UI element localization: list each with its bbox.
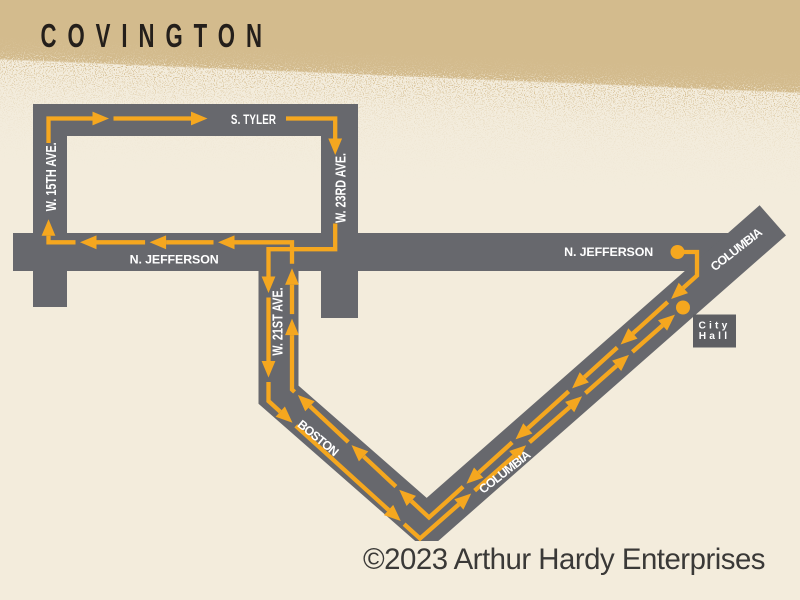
svg-text:S. TYLER: S. TYLER	[231, 111, 276, 127]
svg-text:©2023 Arthur Hardy Enterprises: ©2023 Arthur Hardy Enterprises	[363, 543, 765, 576]
svg-text:COVINGTON: COVINGTON	[41, 17, 273, 55]
svg-text:N. JEFFERSON: N. JEFFERSON	[564, 245, 653, 259]
svg-text:W. 15TH AVE.: W. 15TH AVE.	[42, 142, 59, 211]
svg-text:W. 23RD AVE.: W. 23RD AVE.	[332, 153, 349, 223]
svg-text:W. 21ST AVE.: W. 21ST AVE.	[269, 287, 286, 355]
svg-text:Hall: Hall	[699, 331, 730, 342]
svg-text:N. JEFFERSON: N. JEFFERSON	[130, 253, 219, 267]
